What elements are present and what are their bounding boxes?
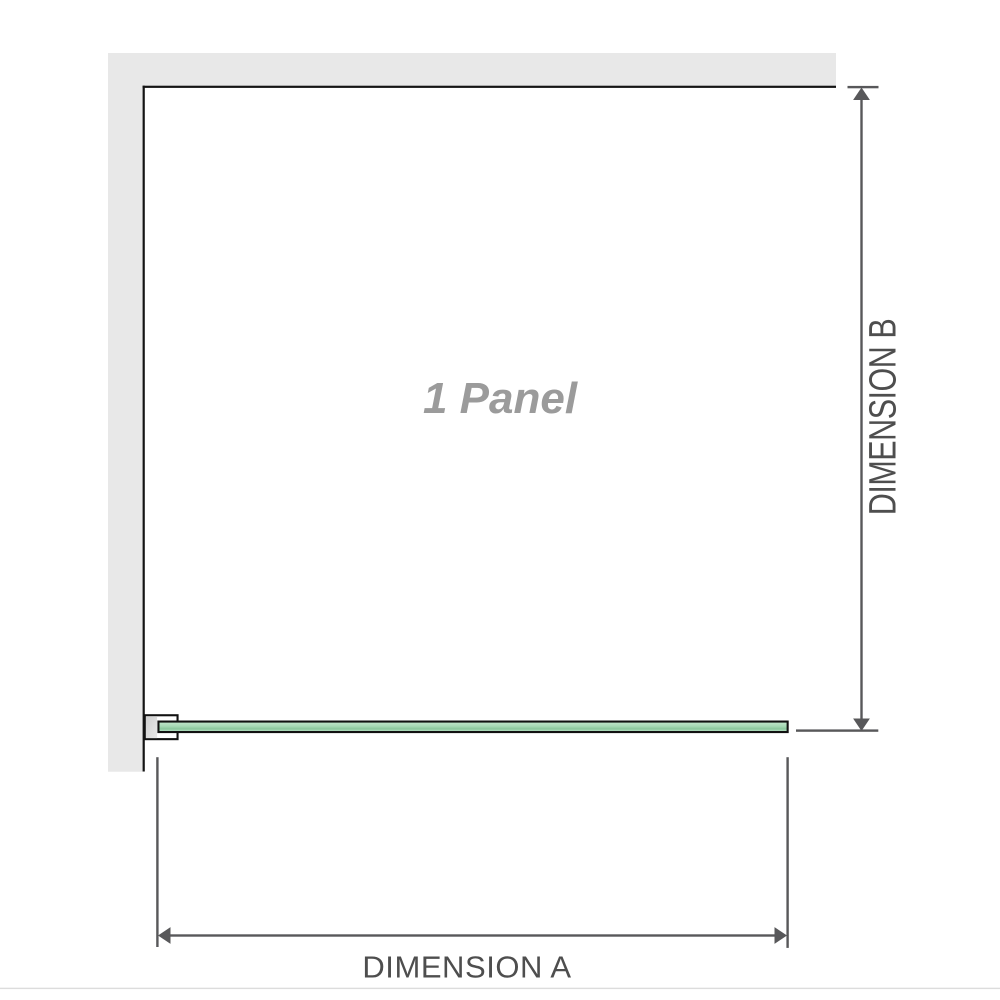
svg-text:DIMENSION A: DIMENSION A (362, 950, 571, 985)
svg-text:1 Panel: 1 Panel (423, 374, 578, 423)
svg-text:DIMENSION B: DIMENSION B (862, 319, 904, 515)
